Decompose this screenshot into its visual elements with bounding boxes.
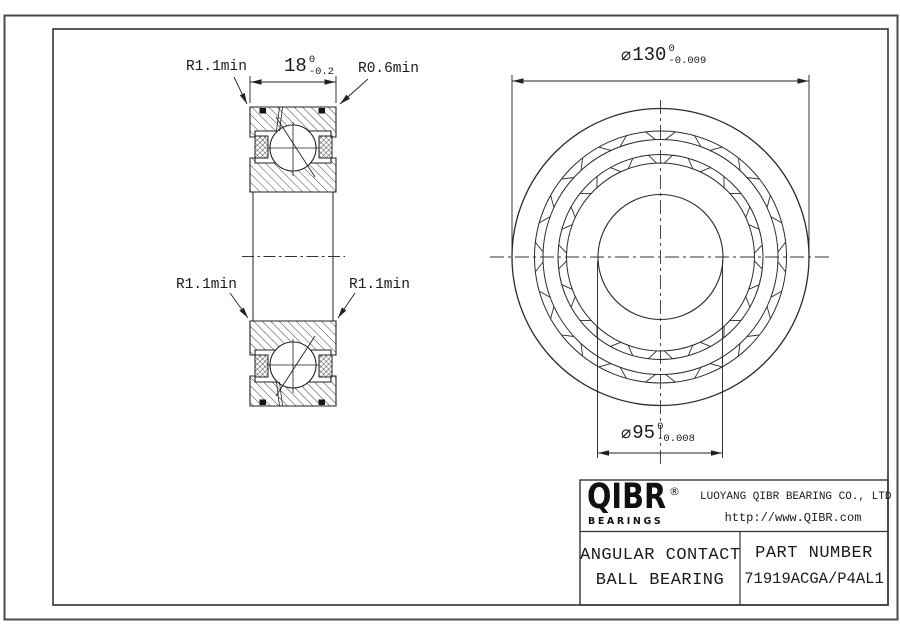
diameter-symbol: ⌀ — [621, 425, 631, 442]
cage-top-right — [319, 136, 332, 158]
dimension-od-tolerance: 0 -0.009 — [668, 43, 706, 67]
dimension-bore-value: 95 — [632, 424, 655, 443]
diameter-symbol: ⌀ — [621, 47, 631, 64]
brand-subtitle: BEARINGS — [588, 516, 683, 527]
leader-mid-right — [338, 293, 355, 318]
registered-trademark-icon: ® — [669, 485, 680, 498]
dimension-width: 18 0 -0.2 — [284, 57, 334, 78]
radius-label-top-left: R1.1min — [186, 59, 247, 75]
seal-notch — [260, 108, 267, 114]
width-extension-lines — [250, 76, 336, 103]
section-view — [242, 107, 345, 406]
cage-bottom-left — [255, 355, 268, 377]
radius-label-mid-left: R1.1min — [176, 277, 237, 293]
seal-notch — [319, 108, 326, 114]
radius-label-mid-right: R1.1min — [349, 277, 410, 293]
dimension-width-tolerance: 0 -0.2 — [309, 54, 334, 78]
front-view — [490, 100, 832, 468]
cage-top-left — [255, 136, 268, 158]
product-type-line1: ANGULAR CONTACT — [580, 546, 740, 565]
radius-label-top-right: R0.6min — [358, 61, 419, 77]
dimension-outer-diameter: ⌀ 130 0 -0.009 — [621, 46, 706, 67]
company-website: http://www.QIBR.com — [700, 511, 886, 525]
part-number-label: PART NUMBER — [740, 544, 888, 563]
leader-mid-left — [230, 293, 248, 318]
leader-top-left — [234, 77, 247, 104]
cage-bottom-right — [319, 355, 332, 377]
seal-notch — [260, 400, 267, 406]
sheet-border — [5, 16, 898, 620]
drawing-linework — [0, 0, 900, 636]
brand-name: QIBR — [587, 483, 666, 513]
leader-top-right — [340, 79, 368, 104]
drawing-sheet: 18 0 -0.2 ⌀ 130 0 -0.009 ⌀ 95 0 -0.008 R… — [0, 0, 900, 636]
product-type-line2: BALL BEARING — [580, 571, 740, 590]
dimension-bore-diameter: ⌀ 95 0 -0.008 — [621, 424, 695, 445]
part-number-value: 71919ACGA/P4AL1 — [740, 570, 888, 588]
company-name: LUOYANG QIBR BEARING CO., LTD — [700, 491, 886, 503]
dimension-width-value: 18 — [284, 57, 307, 76]
dimension-bore-tolerance: 0 -0.008 — [657, 421, 695, 445]
seal-notch — [319, 400, 326, 406]
dimension-od-value: 130 — [632, 46, 666, 65]
brand-logo: QIBR ® BEARINGS — [587, 483, 683, 527]
